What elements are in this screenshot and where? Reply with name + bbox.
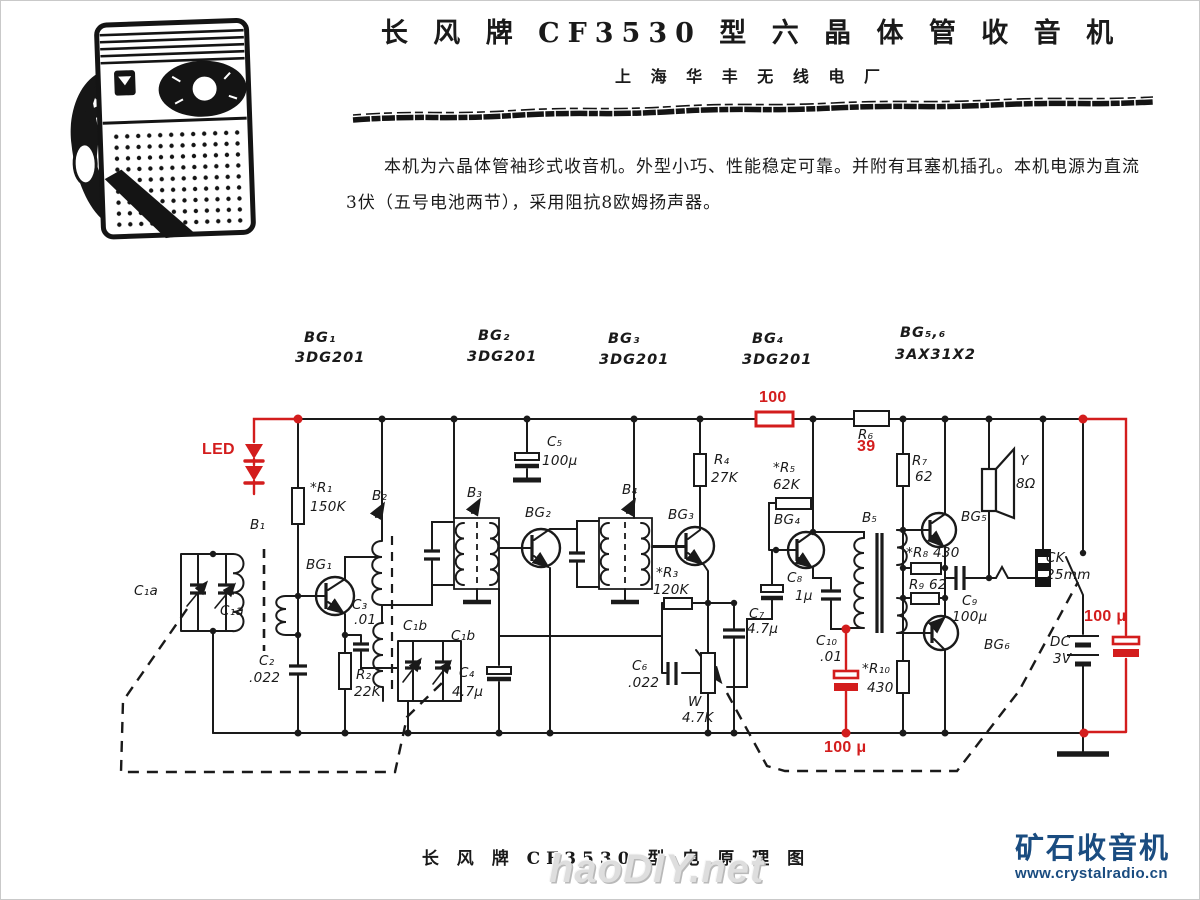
label-r4: R₄ <box>714 452 729 468</box>
label-r5: *R₅ <box>773 460 795 476</box>
label-b5: B₅ <box>862 510 877 526</box>
label-bg5: BG₅ <box>961 509 987 525</box>
watermark-crystal-url: www.crystalradio.cn <box>1015 865 1170 882</box>
label-c2: C₂ <box>259 653 274 669</box>
label-bg4: BG₄ <box>774 512 800 528</box>
label-bg4-name: BG₄ <box>752 331 784 347</box>
label-c3: C₃ <box>352 597 367 613</box>
label-c8-val: 1μ <box>795 588 813 604</box>
label-bg56-type: 3AX31X2 <box>895 347 976 363</box>
label-r5-val: 62K <box>773 477 800 493</box>
label-r7-val: 62 <box>915 469 933 485</box>
label-c10-val: .01 <box>820 649 842 665</box>
label-w: W <box>688 694 702 710</box>
label-r1: *R₁ <box>310 480 332 496</box>
label-c5: C₅ <box>547 434 562 450</box>
label-r8: *R₈ 430 <box>906 545 960 561</box>
label-ck: CK <box>1046 550 1065 566</box>
label-c1a-2: C₁a <box>220 603 244 619</box>
label-bg3-name: BG₃ <box>608 331 640 347</box>
watermark-crystal-title: 矿石收音机 <box>1015 834 1170 865</box>
label-c9-val: 100μ <box>952 609 988 625</box>
label-w-val: 4.7K <box>682 710 714 726</box>
label-r7: R₇ <box>912 453 927 469</box>
circuit-schematic <box>1 1 1200 900</box>
watermark-haodiy: haoDIY.net <box>549 847 764 892</box>
label-dc-val: 3V <box>1053 651 1071 667</box>
label-b3: B₃ <box>467 485 482 501</box>
label-c10: C₁₀ <box>816 633 837 649</box>
scanned-schematic-page: 长 风 牌 CF3530 型 六 晶 体 管 收 音 机 上 海 华 丰 无 线… <box>0 0 1200 900</box>
label-led: LED <box>202 441 235 459</box>
label-bg56-name: BG₅,₆ <box>900 325 946 341</box>
label-c1b-2: C₁b <box>451 628 475 644</box>
label-bg2: BG₂ <box>525 505 551 521</box>
label-r4-val: 27K <box>711 470 738 486</box>
label-ck-val: 25mm <box>1046 567 1091 583</box>
label-r6-39: 39 <box>857 438 875 456</box>
watermark-crystalradio: 矿石收音机 www.crystalradio.cn <box>1015 834 1170 882</box>
label-c7-val: 4.7μ <box>747 621 778 637</box>
label-b2: B₂ <box>372 488 387 504</box>
label-bg3-type: 3DG201 <box>599 352 669 368</box>
label-bg4-type: 3DG201 <box>742 352 812 368</box>
label-dc: DC <box>1050 634 1070 650</box>
label-cap-100u-bottom: 100 μ <box>824 739 866 757</box>
label-c6-val: .022 <box>628 675 659 691</box>
wiring <box>181 419 1084 752</box>
label-r2: R₂ <box>356 667 371 683</box>
label-b4: B₄ <box>622 482 637 498</box>
label-r3: *R₃ <box>656 565 678 581</box>
label-c9: C₉ <box>962 593 977 609</box>
resistors <box>292 411 941 693</box>
label-bg6: BG₆ <box>984 637 1010 653</box>
label-c4-val: 4.7μ <box>452 684 483 700</box>
label-b1: B₁ <box>250 517 265 533</box>
label-c8: C₈ <box>787 570 802 586</box>
label-c7: C₇ <box>749 606 764 622</box>
speaker-symbol <box>982 449 1014 518</box>
label-c6: C₆ <box>632 658 647 674</box>
label-bg2-type: 3DG201 <box>467 349 537 365</box>
label-bg1-name: BG₁ <box>304 330 336 346</box>
label-c5-val: 100μ <box>542 453 578 469</box>
label-r-100: 100 <box>759 389 787 407</box>
label-c1a-1: C₁a <box>134 583 158 599</box>
label-bg1-type: 3DG201 <box>295 350 365 366</box>
label-y: Y <box>1020 453 1029 469</box>
label-c3-val: .01 <box>354 612 376 628</box>
label-r1-val: 150K <box>310 499 346 515</box>
label-bg2-name: BG₂ <box>478 328 510 344</box>
label-r10-val: 430 <box>867 680 894 696</box>
label-cap-100u-right: 100 μ <box>1084 608 1126 626</box>
label-c4: C₄ <box>459 665 474 681</box>
label-r3-val: 120K <box>653 582 689 598</box>
label-r9: R₉ 62 <box>909 577 947 593</box>
label-y-val: 8Ω <box>1016 476 1036 492</box>
label-r2-val: 22K <box>354 684 381 700</box>
label-c2-val: .022 <box>249 670 280 686</box>
label-r10: *R₁₀ <box>862 661 890 677</box>
label-c1b-1: C₁b <box>403 618 427 634</box>
label-bg1: BG₁ <box>306 557 332 573</box>
label-bg3: BG₃ <box>668 507 694 523</box>
